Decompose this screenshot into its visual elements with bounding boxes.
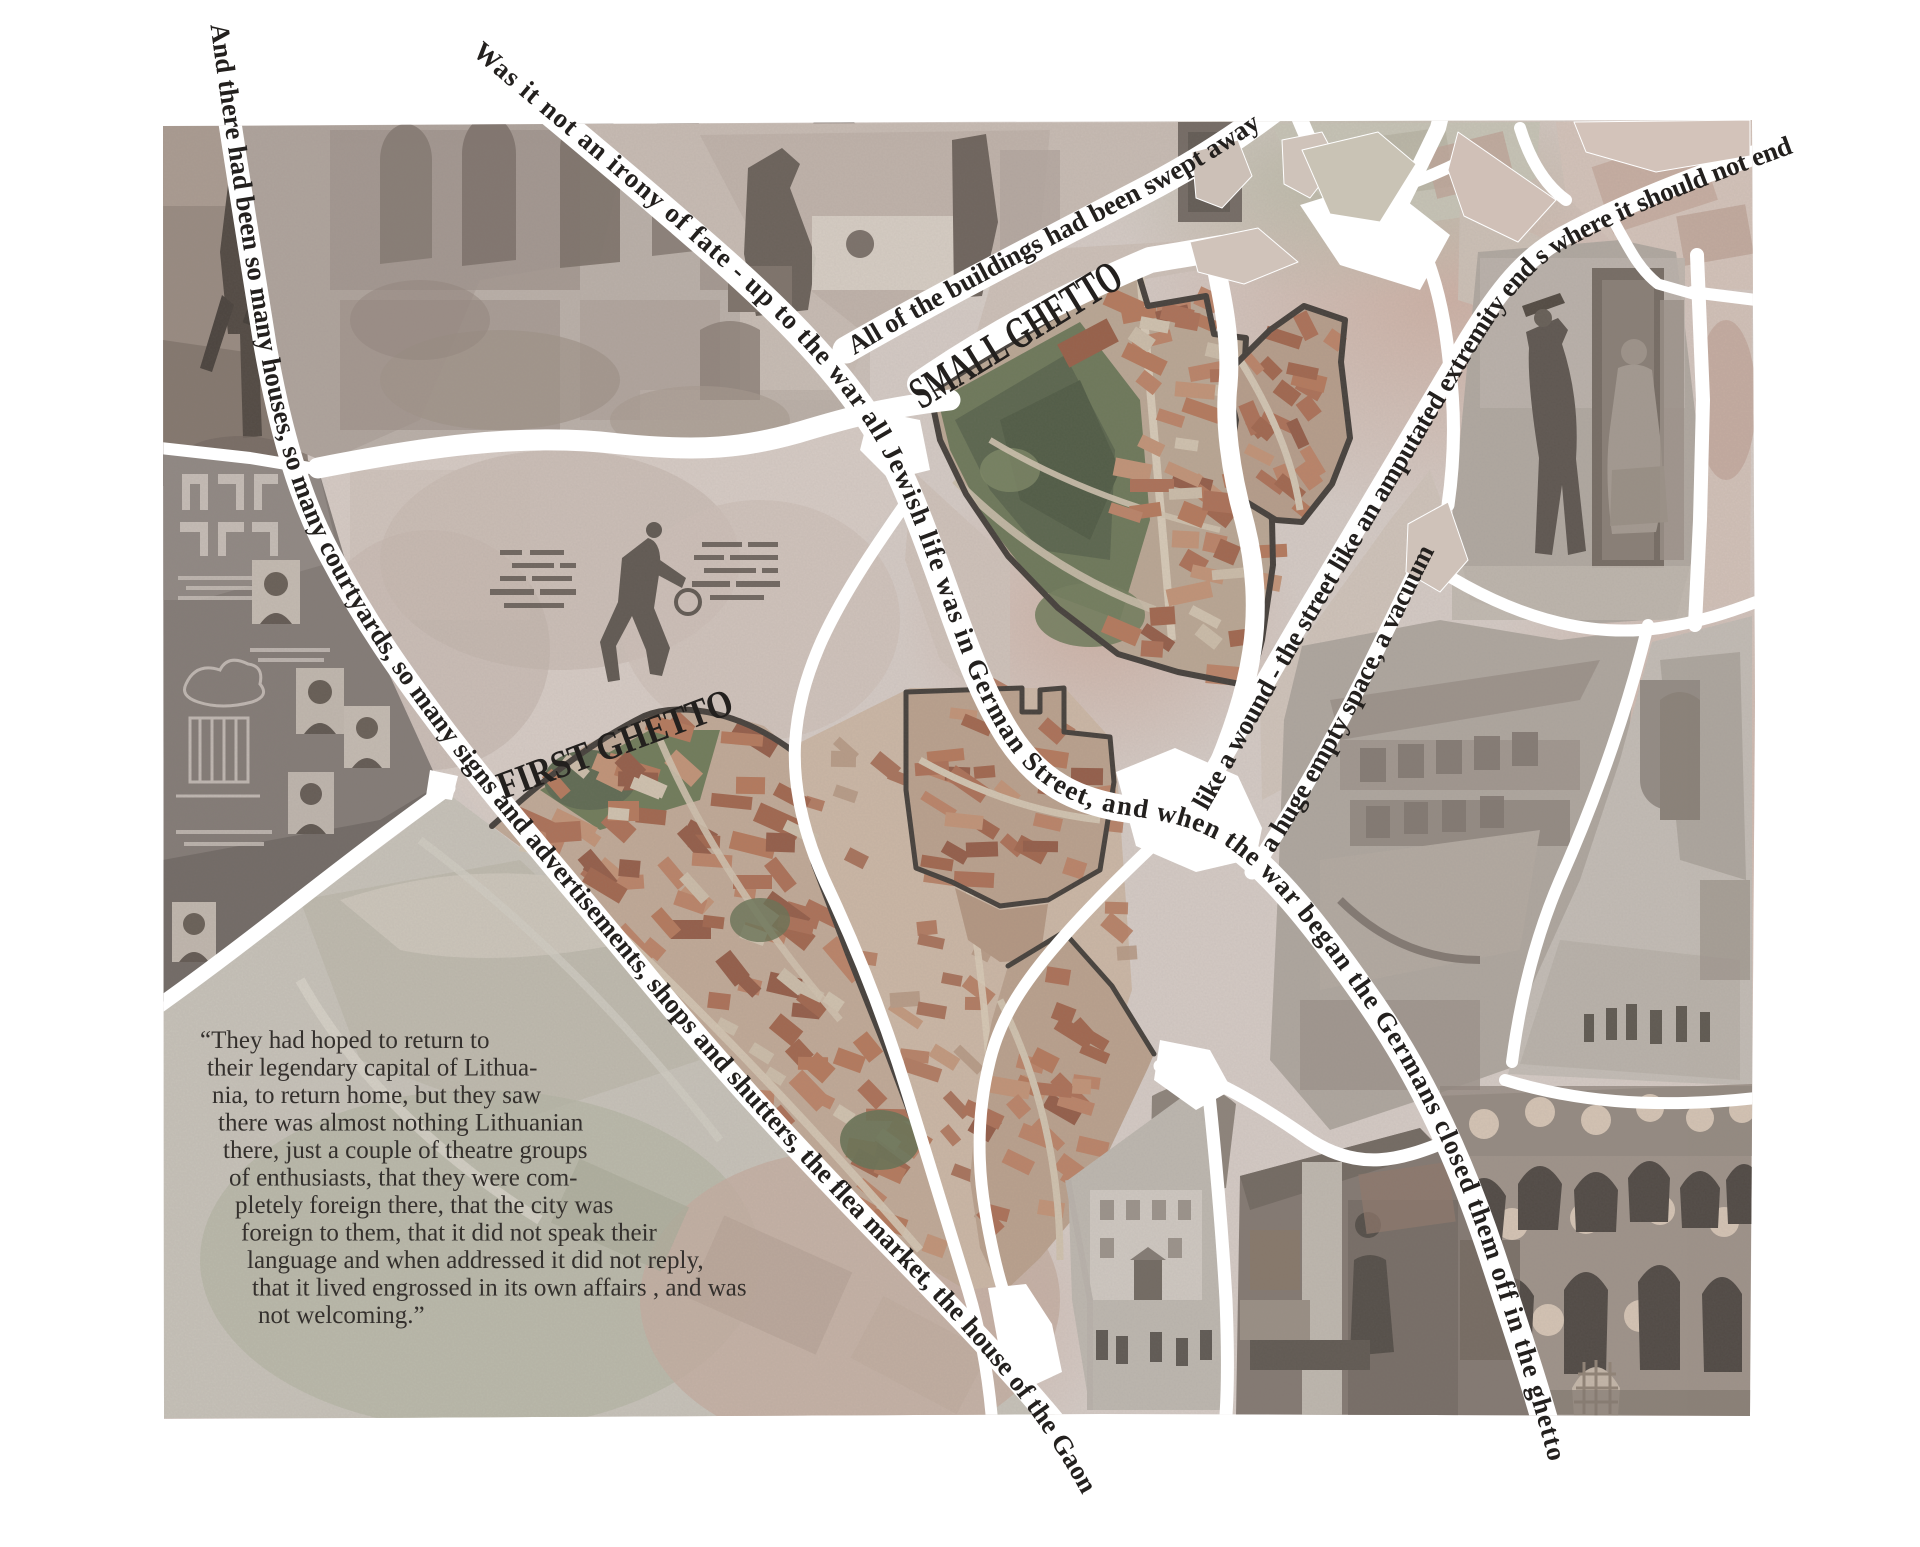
svg-text:there was almost nothing Lithu: there was almost nothing Lithuanian	[218, 1110, 584, 1137]
svg-text:pletely foreign there, that th: pletely foreign there, that the city was	[235, 1192, 613, 1219]
svg-text:nia, to return home, but they: nia, to return home, but they saw	[212, 1082, 541, 1109]
svg-text:of enthusiasts, that they were: of enthusiasts, that they were com-	[229, 1165, 578, 1192]
svg-text:not welcoming.”: not welcoming.”	[258, 1302, 425, 1329]
svg-text:their legendary capital of Lit: their legendary capital of Lithua-	[207, 1055, 537, 1082]
svg-text:“They had hoped to return to: “They had hoped to return to	[200, 1027, 490, 1054]
svg-text:foreign to them, that it did n: foreign to them, that it did not speak t…	[241, 1220, 658, 1247]
svg-text:there, just a couple of theatr: there, just a couple of theatre groups	[223, 1137, 587, 1164]
svg-text:that it lived engrossed in its: that it lived engrossed in its own affai…	[252, 1275, 747, 1302]
svg-text:language and when addressed it: language and when addressed it did not r…	[247, 1247, 704, 1274]
